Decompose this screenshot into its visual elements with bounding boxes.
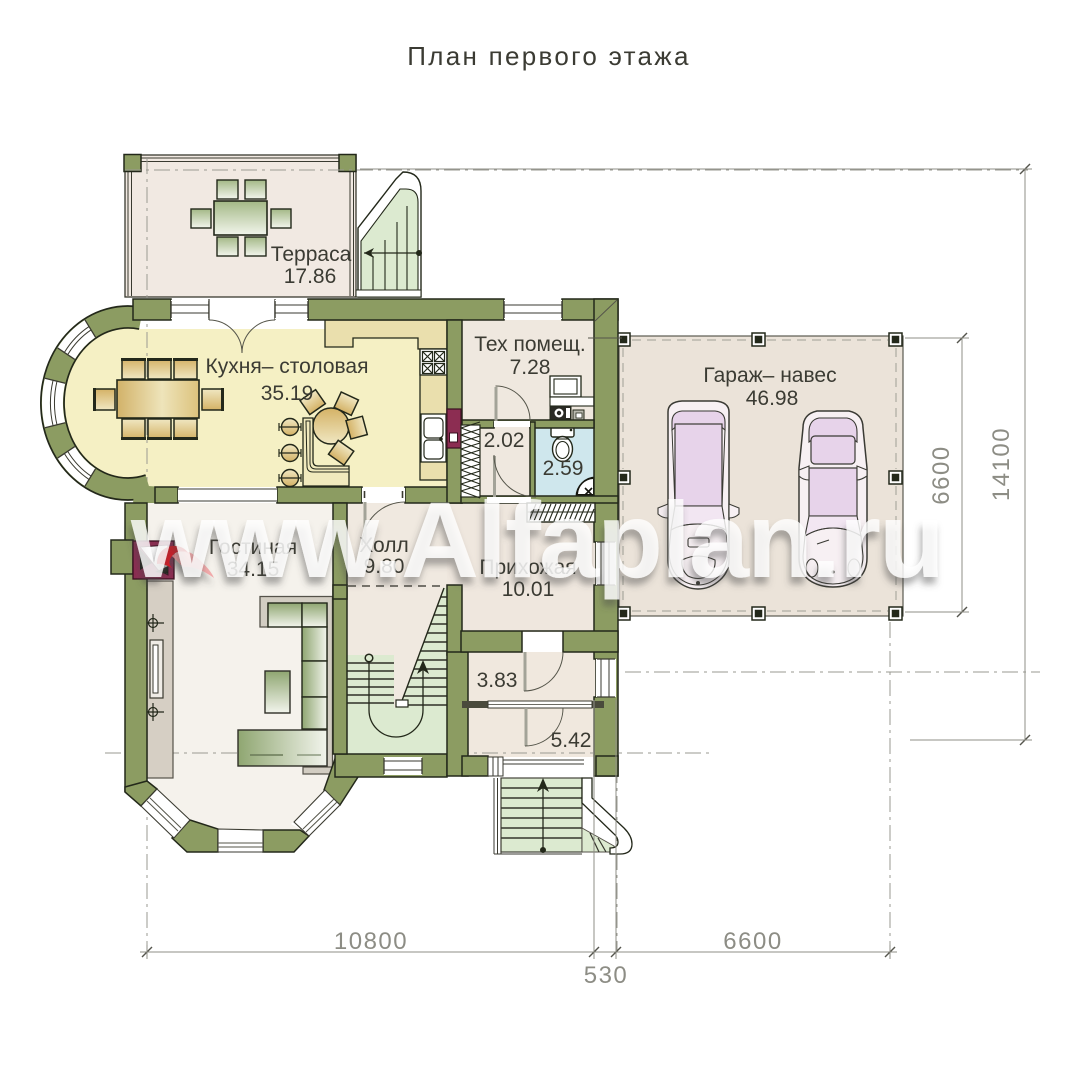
- svg-text:17.86: 17.86: [284, 265, 337, 288]
- svg-text:Тех помещ.: Тех помещ.: [474, 333, 585, 356]
- svg-text:2.02: 2.02: [484, 429, 525, 452]
- svg-text:www.Alfaplan.ru: www.Alfaplan.ru: [130, 479, 943, 600]
- svg-text:6600: 6600: [723, 928, 782, 955]
- svg-text:10800: 10800: [334, 928, 408, 955]
- svg-text:План первого этажа: План первого этажа: [407, 41, 691, 71]
- svg-text:Гараж– навес: Гараж– навес: [703, 364, 836, 387]
- svg-text:35.19: 35.19: [261, 382, 314, 405]
- svg-text:530: 530: [584, 962, 629, 989]
- svg-text:Терраса: Терраса: [271, 243, 352, 266]
- svg-text:3.83: 3.83: [477, 669, 518, 692]
- svg-text:2.59: 2.59: [543, 457, 584, 480]
- svg-text:46.98: 46.98: [746, 387, 799, 410]
- svg-text:14100: 14100: [988, 427, 1015, 501]
- svg-text:7.28: 7.28: [510, 356, 551, 379]
- svg-text:Кухня– столовая: Кухня– столовая: [206, 355, 369, 378]
- svg-text:5.42: 5.42: [551, 729, 592, 752]
